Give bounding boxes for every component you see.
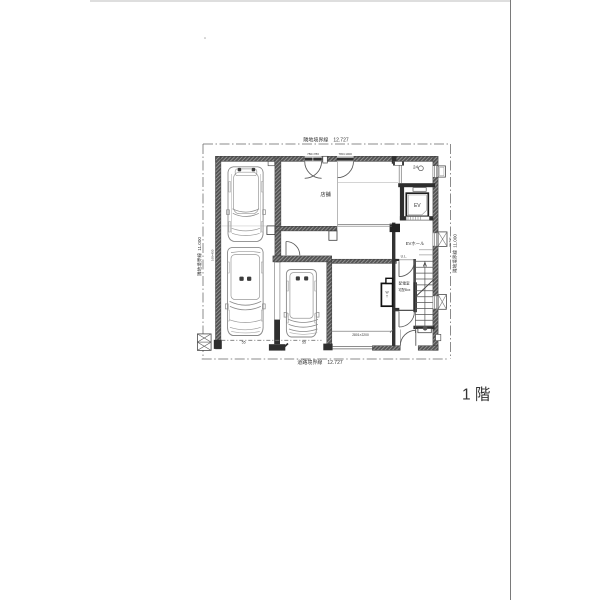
svg-text:2801×2200: 2801×2200 bbox=[352, 333, 369, 337]
svg-text:配電室: 配電室 bbox=[399, 281, 410, 286]
svg-text:160×450: 160×450 bbox=[210, 249, 214, 261]
svg-text:55: 55 bbox=[302, 340, 306, 344]
svg-text:隣地境界線 12.727: 隣地境界線 12.727 bbox=[303, 137, 349, 144]
svg-text:隣地境界線 11.000: 隣地境界線 11.000 bbox=[196, 237, 203, 276]
svg-text:55: 55 bbox=[242, 340, 246, 344]
svg-text:道路境界線 12.727: 道路境界線 12.727 bbox=[297, 359, 343, 366]
svg-text:EVホール: EVホール bbox=[406, 241, 425, 246]
svg-text:T: T bbox=[386, 294, 388, 298]
svg-text:EV: EV bbox=[414, 203, 421, 209]
svg-text:780×1000: 780×1000 bbox=[338, 152, 352, 156]
svg-text:隣地境界線 11.000: 隣地境界線 11.000 bbox=[452, 234, 459, 273]
svg-text:店舗: 店舗 bbox=[320, 190, 330, 198]
svg-text:U.L.: U.L. bbox=[401, 255, 407, 259]
svg-text:W×760: W×760 bbox=[448, 237, 452, 246]
svg-text:1 階: 1 階 bbox=[462, 386, 490, 404]
svg-text:宅配Box: 宅配Box bbox=[398, 287, 410, 292]
svg-text:24: 24 bbox=[413, 165, 419, 170]
svg-text:780×780: 780×780 bbox=[307, 152, 319, 156]
